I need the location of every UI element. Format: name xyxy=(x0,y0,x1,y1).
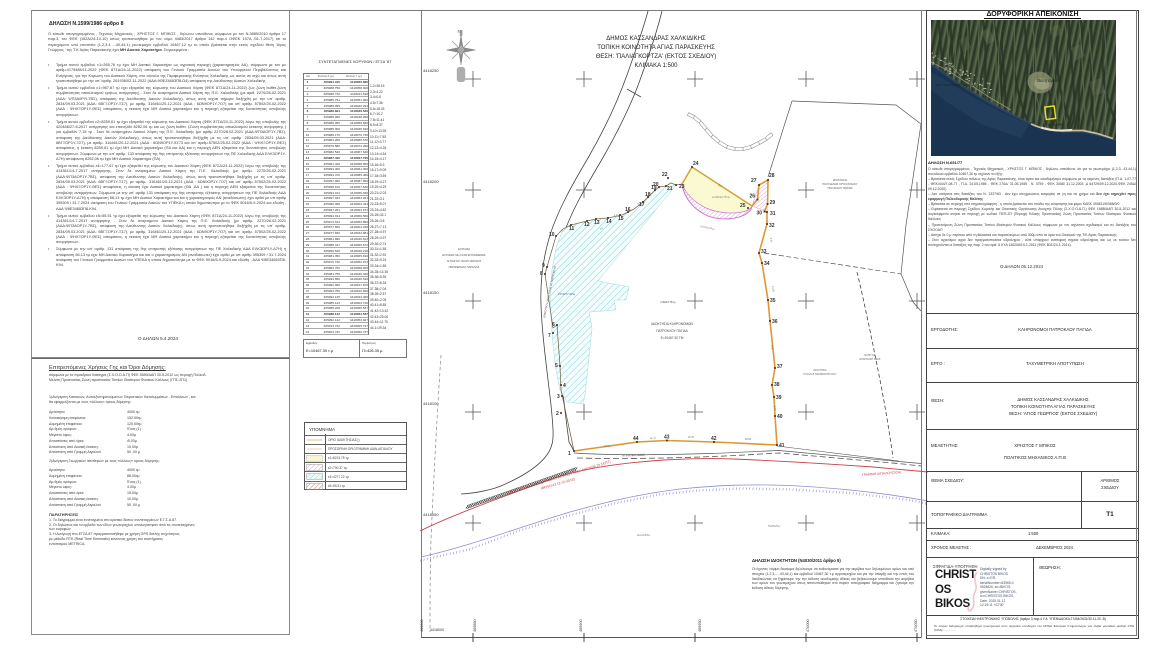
svg-text:14.35: 14.35 xyxy=(771,286,775,293)
svg-text:9: 9 xyxy=(542,263,545,269)
svg-text:4: 4 xyxy=(563,383,566,389)
svg-text:ΠΕΡΙΦΕΡΕΙΑΣ ΠΑΡΑΛΙΑΣ: ΠΕΡΙΦΕΡΕΙΑΣ ΠΑΡΑΛΙΑΣ xyxy=(449,265,480,269)
svg-text:40: 40 xyxy=(777,414,783,420)
svg-text:7: 7 xyxy=(548,333,551,339)
svg-text:469800: 469800 xyxy=(420,619,424,632)
svg-text:11: 11 xyxy=(569,226,575,232)
svg-text:8.55: 8.55 xyxy=(773,406,776,412)
svg-text:38: 38 xyxy=(774,382,780,388)
svg-text:26: 26 xyxy=(750,194,756,200)
svg-text:4418050: 4418050 xyxy=(423,512,439,517)
svg-text:Ε=10467.30 ΤΜ: Ε=10467.30 ΤΜ xyxy=(661,336,684,340)
svg-text:ΠΑΤΡΟΚΛΟΥ ΠΑΓΙΔΑ: ΠΑΤΡΟΚΛΟΥ ΠΑΓΙΔΑ xyxy=(656,329,688,333)
svg-text:ΑΓΝΩΣΤΟΥ ΙΔΙΟΚΤΗΜΟΝΟΣ: ΑΓΝΩΣΤΟΥ ΙΔΙΟΚΤΗΜΟΝΟΣ xyxy=(447,259,482,263)
svg-text:16.70: 16.70 xyxy=(688,436,695,439)
svg-text:ε=8213.78 τμ: ε=8213.78 τμ xyxy=(660,300,676,304)
svg-text:10: 10 xyxy=(549,232,555,238)
svg-text:4418250: 4418250 xyxy=(423,68,439,73)
svg-text:41: 41 xyxy=(779,443,785,449)
svg-text:1: 1 xyxy=(568,451,571,457)
svg-text:15: 15 xyxy=(618,216,624,222)
svg-text:39: 39 xyxy=(776,395,782,401)
svg-text:ΓΠΑΛΛΑΣ ΠΑΡΘΕΝΟΠΟΥΛΟΥ: ΓΠΑΛΛΑΣ ΠΑΡΘΕΝΟΠΟΥΛΟΥ xyxy=(803,373,837,376)
svg-text:27: 27 xyxy=(751,178,757,184)
svg-text:469950: 469950 xyxy=(698,619,702,632)
svg-text:4418100: 4418100 xyxy=(423,401,439,406)
svg-text:ΓΡΑΜΜΗ ΑΙΓΙΑΛΟΥ(ΣΟΑ): ΓΡΑΜΜΗ ΑΙΓΙΑΛΟΥ(ΣΟΑ) xyxy=(862,470,902,477)
svg-text:Αγια Παρασκευη - παραλια: Αγια Παρασκευη - παραλια xyxy=(935,83,975,87)
svg-text:28: 28 xyxy=(769,173,775,179)
svg-text:ΠΟΛΥΞΕΝΗΣ ΧΡΥΣΟΧΟΙΔΟΥ: ΠΟΛΥΞΕΝΗΣ ΧΡΥΣΟΧΟΙΔΟΥ xyxy=(822,182,857,186)
svg-text:29.34: 29.34 xyxy=(604,445,611,448)
svg-text:31: 31 xyxy=(770,211,776,217)
svg-text:30: 30 xyxy=(757,211,763,217)
svg-text:18: 18 xyxy=(645,192,651,198)
svg-text:ΘΕΣΗ: 'ΠΑΛΙΑΓΚΟΡΤΖΑ' (ΕΚΤΟΣ: ΘΕΣΗ: 'ΠΑΛΙΑΓΚΟΡΤΖΑ' (ΕΚΤΟΣ ΣΧΕΔΙΟΥ) xyxy=(596,54,717,60)
svg-text:ΔΗΜΟΣ ΚΑΣΣΑΝΔΡΑΣ ΧΑΛΚΙΔΙΚΗΣ: ΔΗΜΟΣ ΚΑΣΣΑΝΔΡΑΣ ΧΑΛΚΙΔΙΚΗΣ xyxy=(606,36,706,42)
svg-text:5.24: 5.24 xyxy=(769,238,773,244)
svg-text:2: 2 xyxy=(556,411,559,417)
svg-text:ΛΟΙΠΗ ΟΔ.: ΛΟΙΠΗ ΟΔ. xyxy=(864,354,877,357)
svg-text:29.06: 29.06 xyxy=(745,438,752,441)
svg-text:ΘΑΛΑΣΣΑ: ΘΑΛΑΣΣΑ xyxy=(637,533,650,537)
svg-text:ΔΙΟΙΚΗΣΗ: ΔΙΟΙΚΗΣΗ xyxy=(458,247,470,251)
svg-text:5: 5 xyxy=(555,363,558,369)
svg-text:14: 14 xyxy=(606,219,612,225)
svg-text:22: 22 xyxy=(662,172,668,178)
svg-text:ε1=8213.78 τμ: ε1=8213.78 τμ xyxy=(712,195,730,199)
svg-text:ΠΡΟΤΕΙΝΟΜΕΝΗ ΟΡΙΟΓΡΑΜΜΗ ΑΙΓΙΑΛ: ΠΡΟΤΕΙΝΟΜΕΝΗ ΟΡΙΟΓΡΑΜΜΗ ΑΙΓΙΑΛΟΥ (ΦΕΚ 45… xyxy=(507,460,611,495)
svg-text:36: 36 xyxy=(772,319,778,325)
svg-text:12: 12 xyxy=(584,222,590,228)
svg-text:23: 23 xyxy=(679,184,685,190)
svg-text:Θεση αγρου: Θεση αγρου xyxy=(1037,78,1060,83)
svg-text:8: 8 xyxy=(540,271,543,277)
svg-text:16: 16 xyxy=(625,207,631,213)
svg-text:13: 13 xyxy=(594,220,600,226)
svg-text:4418150: 4418150 xyxy=(423,290,439,295)
svg-text:20: 20 xyxy=(653,182,659,188)
svg-text:469850: 469850 xyxy=(473,619,477,632)
svg-text:33: 33 xyxy=(761,249,767,255)
svg-text:ε3=4277.22τμ: ε3=4277.22τμ xyxy=(558,292,576,296)
svg-text:35: 35 xyxy=(770,298,776,304)
svg-text:11.75: 11.75 xyxy=(650,437,657,440)
svg-text:25: 25 xyxy=(740,203,746,209)
svg-text:ΤΟΠΙΚΗ ΚΟΙΝΟΤΗΤΑ ΑΓΙΑΣ ΠΑΡΑΣΚ: ΤΟΠΙΚΗ ΚΟΙΝΟΤΗΤΑ ΑΓΙΑΣ ΠΑΡΑΣΚΕΥΗΣ xyxy=(597,45,715,51)
svg-text:6: 6 xyxy=(552,322,555,328)
svg-text:34: 34 xyxy=(764,261,770,267)
svg-text:ε2=700.37τμ: ε2=700.37τμ xyxy=(700,224,716,231)
svg-text:24: 24 xyxy=(693,161,699,167)
svg-text:ΚΛΙΜΑΚΑ 1:500: ΚΛΙΜΑΚΑ 1:500 xyxy=(634,63,678,69)
svg-text:32: 32 xyxy=(769,223,775,229)
svg-text:ΙΔΙΟΚΤΗΣΙΑ: ΙΔΙΟΚΤΗΣΙΑ xyxy=(833,178,848,182)
svg-text:ΠΑΡΑΛΙΑ: ΠΑΡΑΛΙΑ xyxy=(768,524,780,528)
svg-text:21: 21 xyxy=(667,186,673,192)
svg-text:29: 29 xyxy=(770,200,776,206)
svg-text:3: 3 xyxy=(557,394,560,400)
svg-text:42: 42 xyxy=(711,436,717,442)
svg-text:37: 37 xyxy=(777,364,783,370)
svg-text:ΤΣΑΛΙΚΙΔΟΥ ΜΑΡΙΑΣ: ΤΣΑΛΙΚΙΔΟΥ ΜΑΡΙΑΣ xyxy=(827,186,853,190)
svg-text:ΙΔΙΟΚΤΗΣΙΑ ΚΛΗΡΟΝΟΜΩΝ: ΙΔΙΟΚΤΗΣΙΑ ΚΛΗΡΟΝΟΜΩΝ xyxy=(651,322,693,326)
svg-text:ΕΚΤΑΣΕΙΣ ΜΗ ΚΑΤΑΓΕΓΡΑΜΜΕΝΕΣ: ΕΚΤΑΣΕΙΣ ΜΗ ΚΑΤΑΓΕΓΡΑΜΜΕΝΕΣ xyxy=(442,253,486,257)
svg-text:4418200: 4418200 xyxy=(423,179,439,184)
svg-text:470050: 470050 xyxy=(914,619,918,632)
svg-text:469900: 469900 xyxy=(579,619,583,632)
svg-text:470000: 470000 xyxy=(806,619,810,632)
svg-text:Α ΓΡΟΤΙΚΗ ΟΔΟΣ: Α ΓΡΟΤΙΚΗ ΟΔΟΣ xyxy=(622,453,645,458)
svg-text:4418000: 4418000 xyxy=(430,628,444,632)
svg-text:ΙΔΙΟΚΤΗΣΙΑ: ΙΔΙΟΚΤΗΣΙΑ xyxy=(813,369,827,372)
svg-text:43: 43 xyxy=(664,435,670,441)
svg-text:ΕΠΑΡΧΙΑΚΗ ΟΔΟΣ: ΕΠΑΡΧΙΑΚΗ ΟΔΟΣ xyxy=(859,358,881,361)
svg-text:ΑΓΙΑ ΚΟΡΗ: ΑΓΙΑ ΚΟΡΗ xyxy=(1043,123,1063,127)
svg-text:44: 44 xyxy=(633,436,639,442)
